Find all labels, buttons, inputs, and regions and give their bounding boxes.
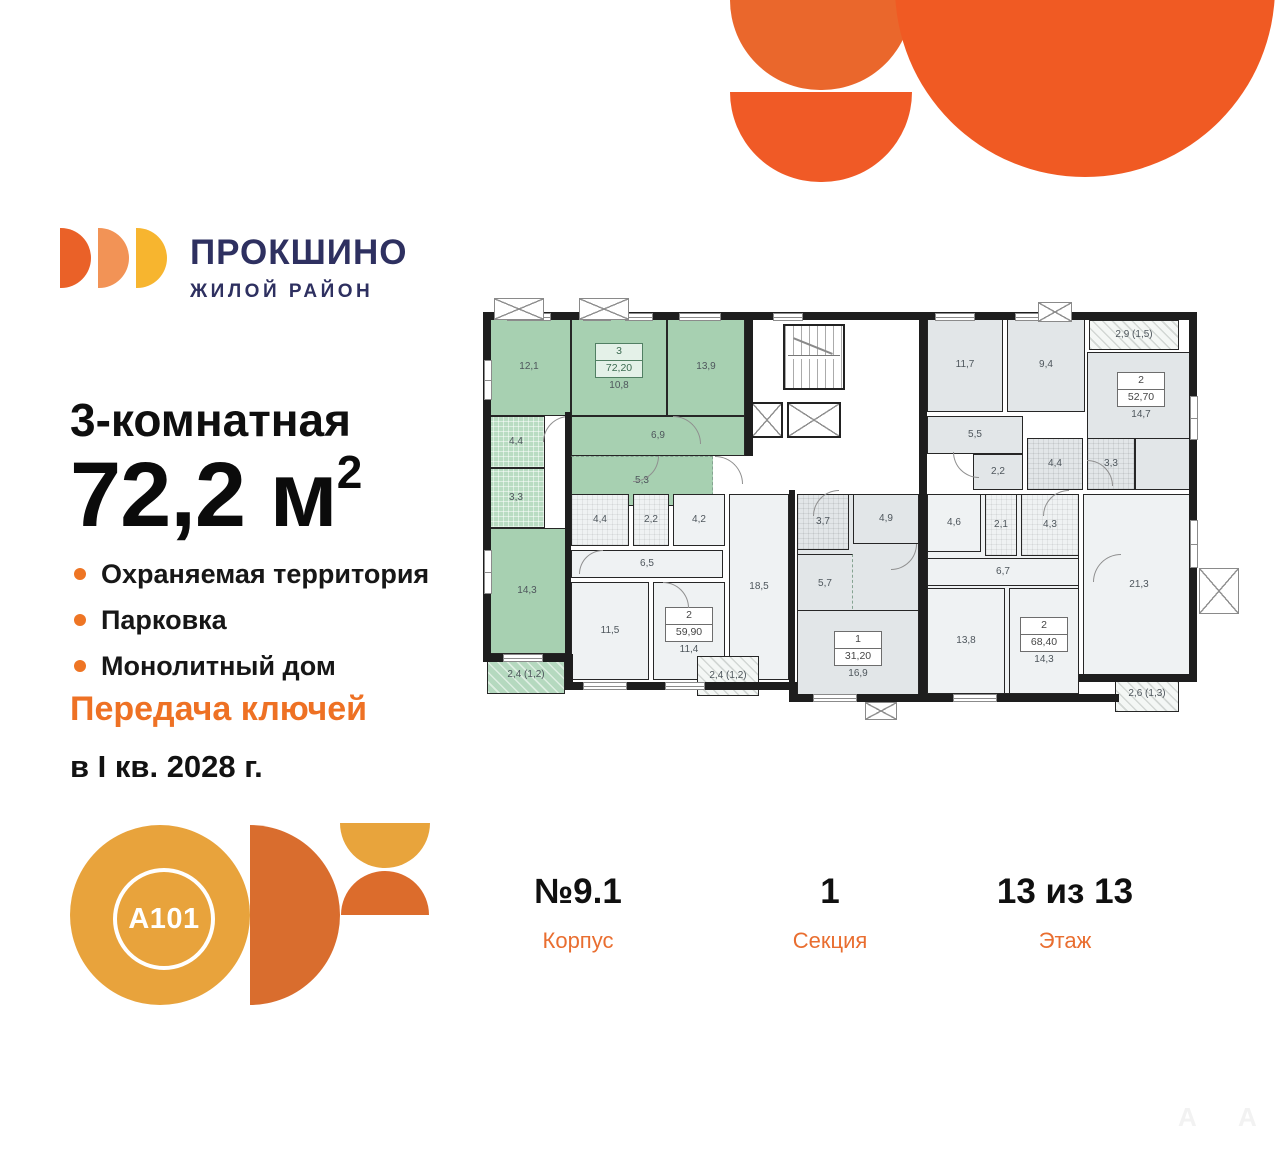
room-area-label: 2,1 (994, 520, 1008, 530)
room-area-label: 3,7 (816, 517, 830, 527)
room-area-label: 2,2 (644, 515, 658, 525)
room-5-7: 5,7 (797, 554, 853, 614)
decor-semicircle-small-bottom (730, 92, 912, 182)
crossed-box-icon (579, 298, 629, 320)
room-area-label: 4,6 (947, 518, 961, 528)
window-marker (665, 682, 705, 690)
decor-halfdisc-yellow (340, 823, 430, 868)
apartment-rooms-count: 1 (835, 632, 881, 649)
room-area-label: 13,8 (956, 636, 975, 646)
area-value: 72,2 м (70, 444, 337, 546)
room-area-label: 2,6 (1,3) (1128, 689, 1165, 699)
door-arc-icon (715, 456, 743, 484)
brand-text-block: ПРОКШИНО ЖИЛОЙ РАЙОН (190, 233, 407, 303)
wall (1079, 674, 1197, 682)
room-area-label: 3,3 (509, 493, 523, 503)
room-9-4: 9,4 (1007, 318, 1085, 412)
elevator-icon (787, 402, 841, 438)
window-marker (679, 313, 721, 321)
room-area-label: 5,5 (968, 430, 982, 440)
feature-list: Охраняемая территория Парковка Монолитны… (74, 551, 429, 689)
brand-name: ПРОКШИНО (190, 233, 407, 273)
crossed-box-icon (1199, 568, 1239, 614)
crossed-box-icon (865, 702, 897, 720)
window-marker (1190, 520, 1198, 568)
room-area-label: 18,5 (749, 582, 768, 592)
room-4-4: 4,4 (571, 494, 629, 546)
apartment-badge: 268,40 (1020, 617, 1068, 651)
room-area-label: 6,5 (640, 559, 654, 569)
room-area-label: 11,5 (601, 626, 620, 636)
apartment-rooms-count: 2 (1118, 373, 1164, 390)
window-marker (953, 694, 997, 702)
stairs-detail (788, 355, 839, 359)
room-area-label: 4,3 (1043, 520, 1057, 530)
area-superscript: 2 (337, 446, 362, 498)
room-4-6: 4,6 (927, 494, 981, 552)
apartment-badge: 252,70 (1117, 372, 1165, 406)
room-area-label: 10,8 (609, 381, 628, 391)
room-area-label: 6,7 (996, 567, 1010, 577)
apartment-rooms-count: 2 (666, 608, 712, 625)
room-13-9: 13,9 (667, 318, 745, 416)
brand-petal-icon (60, 228, 91, 288)
room-4-2: 4,2 (673, 494, 725, 546)
wall (1189, 312, 1197, 682)
feature-item: Охраняемая территория (74, 551, 429, 597)
apartment-area (1135, 438, 1195, 490)
room-area-label: 12,1 (519, 362, 538, 372)
room-3-3: 3,3 (487, 468, 545, 528)
brand-petal-icon (98, 228, 129, 288)
feature-item: Парковка (74, 597, 429, 643)
handover-line1: Передача ключей (70, 690, 367, 729)
floorplan: 12,1372,2010,813,96,95,34,43,314,32,4 (1… (483, 304, 1207, 728)
bullet-dot-icon (74, 660, 86, 672)
stat-section-label: Секция (720, 928, 940, 954)
brand-tagline: ЖИЛОЙ РАЙОН (190, 281, 407, 303)
feature-label: Парковка (101, 605, 227, 636)
apartment-area-value: 68,40 (1021, 635, 1067, 651)
decor-halfdisc-right (250, 825, 340, 1005)
window-marker (813, 694, 857, 702)
window-marker (625, 313, 653, 321)
listing-flyer: { "brand": { "name": "ПРОКШИНО", "taglin… (0, 0, 1280, 1160)
room-area-label: 4,4 (1048, 459, 1062, 469)
a101-ring: A101 (113, 868, 215, 970)
bullet-dot-icon (74, 568, 86, 580)
room-area-label: 5,7 (818, 579, 832, 589)
window-marker (583, 682, 627, 690)
apartment-rooms-count: 3 (596, 344, 642, 361)
apartment-rooms-count: 2 (1021, 618, 1067, 635)
wall (919, 490, 927, 694)
room-18-5: 18,5 (729, 494, 789, 680)
room-14-7: 252,7014,7 (1087, 352, 1195, 440)
room-area-label: 2,9 (1,5) (1115, 330, 1152, 340)
watermark-glyph: А (1178, 1102, 1197, 1132)
stat-floor-label: Этаж (955, 928, 1175, 954)
room-area-label: 4,4 (509, 437, 523, 447)
feature-item: Монолитный дом (74, 643, 429, 689)
handover-line2: в I кв. 2028 г. (70, 749, 263, 785)
apartment-area-value: 52,70 (1118, 390, 1164, 406)
room-16-9: 131,2016,9 (797, 610, 919, 700)
room-area-label: 9,4 (1039, 360, 1053, 370)
room-area-label: 14,7 (1131, 410, 1150, 420)
window-marker (503, 654, 543, 662)
room-area-label: 16,9 (848, 669, 867, 679)
room-11-7: 11,7 (927, 318, 1003, 412)
feature-label: Монолитный дом (101, 651, 336, 682)
room-area-label: 13,9 (696, 362, 715, 372)
room-21-3: 21,3 (1083, 494, 1195, 676)
feature-label: Охраняемая территория (101, 559, 429, 590)
room-6-7: 6,7 (927, 558, 1079, 586)
room-area-label: 4,9 (879, 514, 893, 524)
stat-section-value: 1 (720, 872, 940, 912)
decor-halfdisc-orange (341, 871, 429, 915)
stat-building: №9.1 Корпус (468, 872, 688, 954)
room-area-label: 21,3 (1129, 580, 1148, 590)
apartment-area-value: 59,90 (666, 625, 712, 641)
stat-floor-value: 13 из 13 (955, 872, 1175, 912)
stat-building-value: №9.1 (468, 872, 688, 912)
a101-logo-text: A101 (128, 903, 199, 936)
room-14-3: 14,3 (487, 528, 567, 654)
room-area-label: 11,7 (956, 360, 975, 370)
wall (919, 312, 927, 490)
room-13-8: 13,8 (927, 588, 1005, 694)
room-5-5: 5,5 (927, 416, 1023, 454)
wall (745, 312, 753, 456)
brand-petal-icon (136, 228, 167, 288)
stat-section: 1 Секция (720, 872, 940, 954)
watermark-glyph: А (1238, 1102, 1257, 1132)
room-4-4: 4,4 (1027, 438, 1083, 490)
stat-building-label: Корпус (468, 928, 688, 954)
stat-floor: 13 из 13 Этаж (955, 872, 1175, 954)
room-2-4-1-2-: 2,4 (1,2) (697, 656, 759, 696)
room-area-label: 2,2 (991, 467, 1005, 477)
window-marker (935, 313, 975, 321)
apartment-badge: 259,90 (665, 607, 713, 641)
room-2-1: 2,1 (985, 494, 1017, 556)
room-area-label: 4,4 (593, 515, 607, 525)
room-area-label: 14,3 (517, 586, 536, 596)
crossed-box-icon (1038, 302, 1072, 322)
elevator-icon (751, 402, 783, 438)
window-marker (1190, 396, 1198, 440)
window-marker (773, 313, 803, 321)
apartment-badge: 372,20 (595, 343, 643, 377)
room-area-label: 2,4 (1,2) (709, 671, 746, 681)
crossed-box-icon (494, 298, 544, 320)
room-area-label: 11,4 (680, 645, 699, 655)
brand-logo (60, 228, 167, 288)
room-14-3: 268,4014,3 (1009, 588, 1079, 694)
apartment-badge: 131,20 (834, 631, 882, 665)
room-area-label: 14,3 (1034, 655, 1053, 665)
apartment-area-value: 31,20 (835, 649, 881, 665)
decor-semicircle-small-top (730, 0, 912, 90)
decor-circle-large (895, 0, 1275, 177)
wall (789, 490, 795, 686)
room-4-4: 4,4 (487, 416, 545, 468)
window-marker (484, 550, 492, 594)
door-arc-icon (953, 452, 979, 478)
watermark: А А (1178, 1102, 1257, 1133)
room-2-9-1-5-: 2,9 (1,5) (1089, 320, 1179, 350)
window-marker (484, 360, 492, 400)
listing-area: 72,2 м2 (70, 443, 361, 548)
room-12-1: 12,1 (487, 318, 571, 416)
listing-title: 3-комнатная (70, 393, 351, 447)
room-area-label: 2,4 (1,2) (507, 670, 544, 680)
room-area-label: 4,2 (692, 515, 706, 525)
apartment-area-value: 72,20 (596, 361, 642, 377)
wall (565, 412, 571, 660)
room-area-label: 6,9 (651, 431, 665, 441)
room-2-2: 2,2 (633, 494, 669, 546)
room-4-9: 4,9 (853, 494, 919, 544)
room-10-8: 372,2010,8 (571, 318, 667, 416)
room-6-9: 6,9 (571, 416, 745, 456)
room-2-2: 2,2 (973, 454, 1023, 490)
stairs-detail (793, 337, 832, 354)
stairs-icon (783, 324, 845, 390)
bullet-dot-icon (74, 614, 86, 626)
room-11-5: 11,5 (571, 582, 649, 680)
